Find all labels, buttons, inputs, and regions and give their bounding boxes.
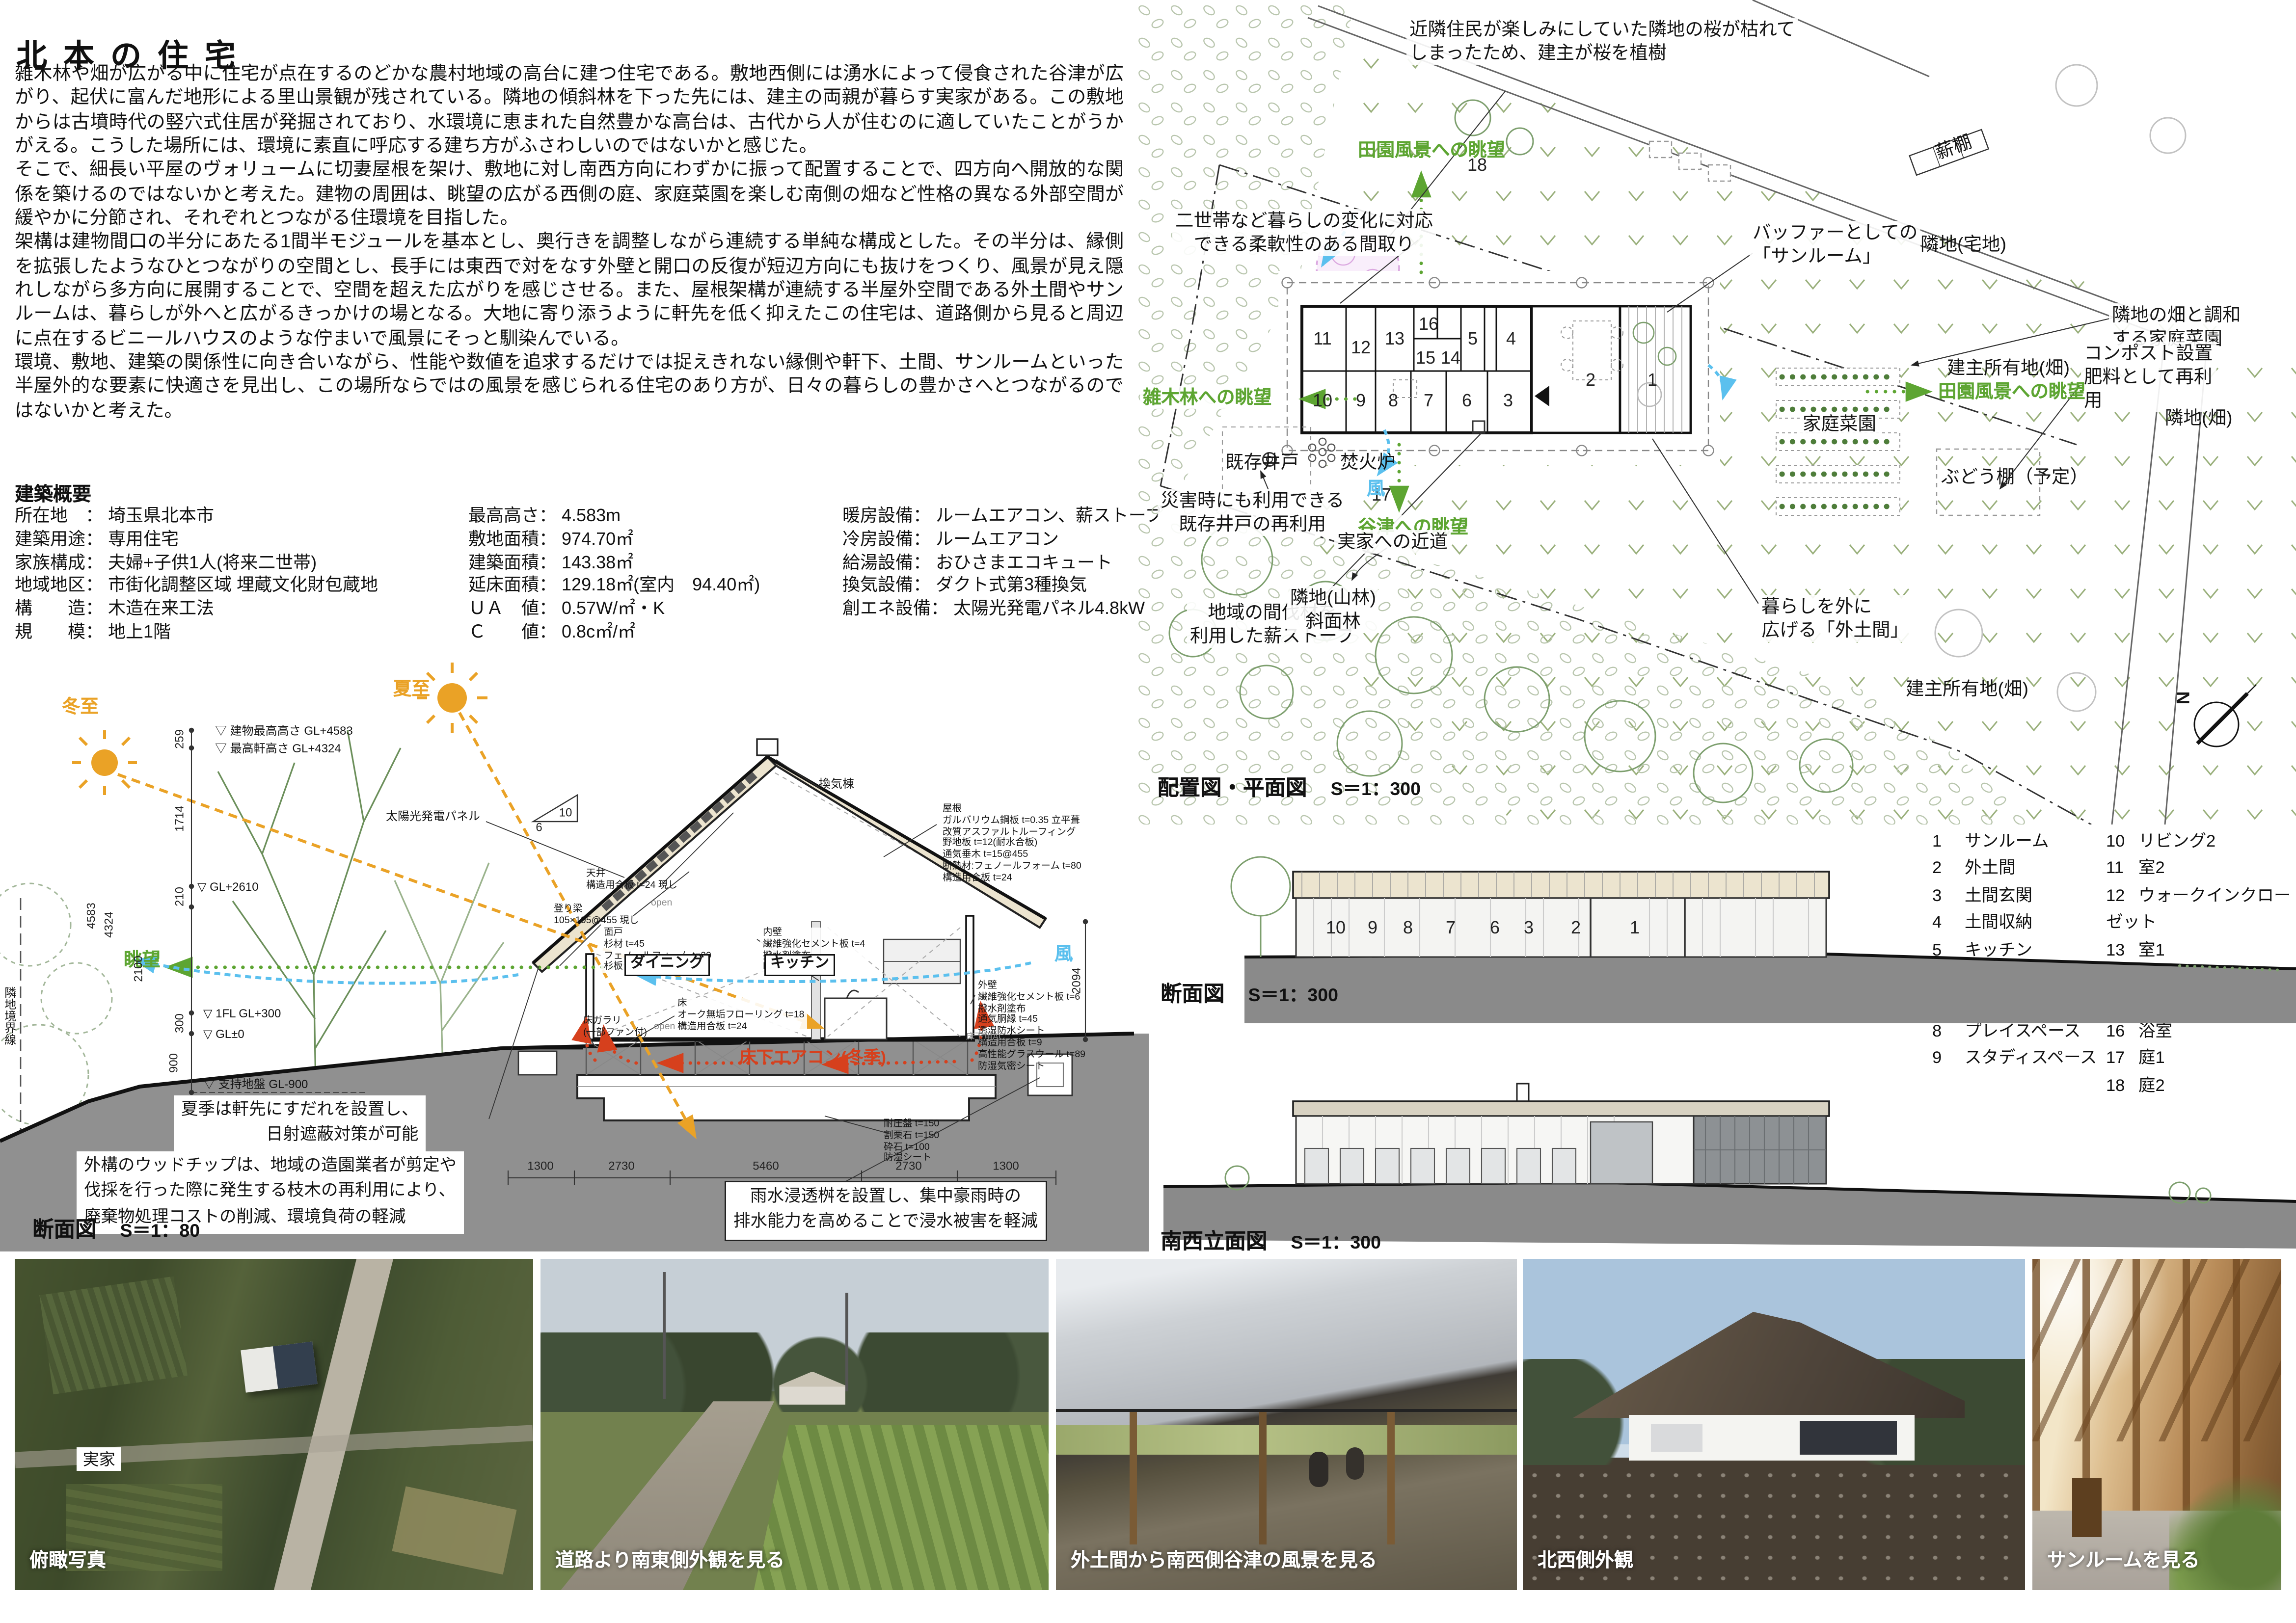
rainwater-note: 雨水浸透桝を設置し、集中豪雨時の 排水能力を高めることで浸水被害を軽減: [725, 1181, 1047, 1241]
photo-aerial: 実家 俯瞰写真: [15, 1259, 533, 1590]
overview-value: おひさまエコキュート: [936, 552, 1112, 572]
room-9: 9: [1356, 390, 1366, 411]
dim-1300: 1300: [993, 1160, 1019, 1173]
fire-pit-label: 焚火炉: [1340, 451, 1396, 474]
dim-4583: 4583: [85, 903, 98, 929]
timber-post: [1259, 1411, 1266, 1544]
person-silhouette: [1309, 1451, 1328, 1487]
room-6: 6: [1462, 390, 1472, 411]
left-tree: [1231, 857, 1290, 957]
sec300-room: 7: [1446, 917, 1456, 938]
room-11: 11: [1313, 328, 1331, 349]
jikka-tag: 実家: [77, 1448, 121, 1471]
intro-paragraph: 雑木林や畑が広がる中に住宅が点在するのどかな農村地域の高台に建つ住宅である。敷地…: [15, 62, 1124, 158]
wall-right: [966, 916, 973, 1039]
ac-unit-label: 床下用AC: [966, 1034, 1005, 1045]
kitchen-counter: [825, 998, 887, 1039]
overview-value: 太陽光発電パネル4.8kW: [953, 598, 1145, 619]
white-wall: [1628, 1414, 1915, 1461]
sec300-room: 8: [1403, 917, 1413, 938]
open-label: open: [654, 1022, 675, 1033]
wind-label: 風: [1054, 942, 1073, 966]
photo-caption: サンルームを見る: [2047, 1544, 2200, 1572]
boundary-label: 隣地境界線: [3, 986, 17, 1045]
dim-1714: 1714: [173, 805, 187, 831]
sun-winter: [72, 730, 137, 795]
over-value: 0.57W/㎡・K: [562, 598, 665, 619]
dim-5460: 5460: [753, 1160, 779, 1173]
room-1: 1: [1648, 370, 1657, 390]
grape-trellis-label: ぶどう棚（予定）: [1941, 465, 2088, 489]
overview-value: 129.18㎡(室内 94.40㎡): [562, 575, 760, 595]
plan-indoor: [1302, 306, 1532, 433]
intro-text: 雑木林や畑が広がる中に住宅が点在するのどかな農村地域の高台に建つ住宅である。敷地…: [15, 62, 1124, 423]
overview-label: 創エネ設備：: [842, 598, 953, 619]
overview-label: 地域地区：: [15, 575, 108, 595]
overview-value: ルームエアコン、薪ストーブ: [936, 505, 1163, 526]
overview-label: 建築用途：: [15, 528, 108, 549]
aerial-road: [274, 1259, 393, 1590]
sunlit-field: [1056, 1425, 1517, 1455]
overview-value: 974.70㎡: [562, 528, 633, 549]
kitchen-garden-label: 家庭菜園: [1800, 412, 1879, 436]
underfloor-ac-label: 床下エアコン(冬季): [739, 1048, 886, 1070]
wind-plan-label: 風: [1367, 477, 1385, 501]
aerial-solar-roof: [273, 1341, 318, 1388]
outdoor-doma-note: 暮らしを外に 広げる「外土間」: [1758, 595, 1912, 642]
overview-label: 建築面積：: [468, 552, 562, 572]
neighbor-forest-label: 隣地(山林) 斜面林: [1287, 586, 1379, 633]
dining-label: ダイニング: [624, 954, 710, 976]
foundation: [577, 1075, 996, 1120]
timber-post: [1388, 1411, 1395, 1544]
rural-view-top-label: 田園風景への眺望: [1358, 138, 1505, 162]
room-7: 7: [1424, 390, 1433, 411]
room-4: 4: [1506, 328, 1516, 349]
ridge-vent-label: 換気棟: [819, 777, 854, 792]
dim-2730: 2730: [895, 1160, 921, 1173]
dim-259: 259: [173, 729, 187, 749]
woods-view-label: 雑木林への眺望: [1140, 386, 1275, 409]
overview-value: 木造在来工法: [108, 598, 214, 619]
wind-arrow-outside: [135, 960, 518, 984]
solar-panel-label: 太陽光発電パネル: [386, 810, 480, 825]
roof-edge: [1293, 1101, 1829, 1116]
sunroom-block: [1694, 1116, 1826, 1184]
neighbor-field-label: 隣地(畑): [2165, 406, 2232, 430]
intro-paragraph: 環境、敷地、建築の関係性に向き合いながら、性能や数値を追求するだけでは捉えきれな…: [15, 350, 1124, 423]
overview-label: 所在地 ：: [15, 505, 108, 526]
window-opening-2: [1651, 1424, 1702, 1452]
deck-footing: [518, 1051, 557, 1075]
two-household-note: 二世帯など暮らしの変化に対応 できる柔軟性のある間取り: [1172, 209, 1436, 256]
max-height-label: ▽ 建物最高高さ GL+4583: [215, 724, 353, 739]
window-opening: [1800, 1420, 1897, 1456]
gl0-label: ▽ GL±0: [203, 1028, 244, 1042]
dim-300: 300: [173, 1013, 187, 1033]
sec300-room: 3: [1524, 917, 1534, 938]
eave-height-label: ▽ 最高軒高さ GL+4324: [215, 742, 341, 757]
north-label: N: [2172, 691, 2195, 704]
compost-note: コンポスト設置 肥料として再利 用: [2081, 342, 2216, 412]
dim-900: 900: [167, 1053, 181, 1073]
vegetable-field: [754, 1425, 1049, 1591]
sec300-room: 1: [1630, 917, 1640, 938]
overview-heading: 建築概要: [15, 479, 91, 506]
overview-label: 冷房設備：: [842, 528, 936, 549]
slab-note-label: 耐圧盤 t=150 割栗石 t=150 砕石 t=100 防湿シート: [884, 1119, 939, 1165]
overview-label: 最高高さ：: [468, 505, 562, 526]
room-16: 16: [1419, 314, 1438, 334]
recess-block: [1591, 1122, 1652, 1184]
roof-spec-label: 屋根 ガルバリウム鋼板 t=0.35 立平葺 改質アスファルトルーフィング 野地…: [943, 804, 1081, 884]
utility-pole: [845, 1292, 848, 1392]
overview-value: ダクト式第3種換気: [936, 575, 1087, 595]
room-15: 15: [1416, 347, 1435, 368]
chair-silhouette: [2072, 1478, 2102, 1538]
room-10: 10: [1313, 390, 1332, 411]
room-3: 3: [1503, 390, 1513, 411]
intro-paragraph: 架構は建物間口の半分にあたる1間半モジュールを基本とし、奥行きを調整しながら連続…: [15, 230, 1124, 350]
plan-doma: [1532, 306, 1620, 433]
fl1-label: ▽ 1FL GL+300: [203, 1007, 281, 1022]
photo-caption: 道路より南東側外観を見る: [555, 1544, 784, 1572]
eave-line: [1056, 1410, 1517, 1412]
presentation-board: 北本の住宅 雑木林や畑が広がる中に住宅が点在するのどかな農村地域の高台に建つ住宅…: [0, 0, 2296, 1623]
elevation-sw: 南西立面図S＝1：300: [1149, 1031, 2296, 1266]
photo-nw-exterior: 北西側外観: [1523, 1259, 2025, 1590]
overview-value: 143.38㎡: [562, 552, 633, 572]
overview-value: ルームエアコン: [936, 528, 1059, 549]
room-2: 2: [1586, 370, 1595, 390]
dim-2730: 2730: [608, 1160, 634, 1173]
ceiling-spec-label: 天井 構造用合板 t=24 現し: [586, 869, 677, 892]
sec300-room: 9: [1368, 917, 1378, 938]
overview-label: 暖房設備：: [842, 505, 936, 526]
ridge-vent: [757, 739, 778, 755]
photo-sunroom: サンルームを見る: [2032, 1259, 2281, 1590]
disaster-well-note: 災害時にも利用できる 既存井戸の再利用: [1158, 489, 1347, 536]
existing-well-label: 既存井戸: [1225, 451, 1299, 474]
photo-doma: 外土間から南西側谷津の風景を見る: [1056, 1259, 1517, 1590]
overview-label: ＵＡ 値：: [468, 598, 562, 619]
overview-col-1: 所在地 ： 埼玉県北本市 建築用途： 専用住宅 家族構成： 夫婦+子供1人(将来…: [15, 505, 457, 644]
sec300-caption: 断面図S＝1：300: [1161, 978, 1338, 1009]
intro-paragraph: そこで、細長い平屋のヴォリュームに切妻屋根を架け、敷地に対し南西方向にわずかに振…: [15, 158, 1124, 230]
owner-land-lower-label: 建主所有地(畑): [1906, 677, 2028, 701]
photo-caption: 俯瞰写真: [29, 1544, 106, 1572]
slope-rise: 6: [536, 821, 542, 834]
bearing-ground-label: ▽ 支持地盤 GL-900: [203, 1078, 308, 1092]
owner-land-upper-label: 建主所有地(畑): [1947, 356, 2070, 380]
room-5: 5: [1468, 328, 1478, 349]
overview-value: 4.583m: [562, 505, 621, 526]
overview-value: 専用住宅: [108, 528, 179, 549]
dim-4324: 4324: [103, 911, 116, 937]
overview-col-3: 暖房設備： ルームエアコン、薪ストーブ 冷房設備： ルームエアコン 給湯設備： …: [842, 505, 1130, 621]
dim-1300: 1300: [527, 1160, 553, 1173]
shortcut-label: 実家への近道: [1334, 530, 1451, 554]
sunroom-buffer-note: バッファーとしての 「サンルーム」: [1750, 221, 1920, 268]
outer-wall-spec-label: 外壁 繊維強化セメント板 t=6 撥水剤塗布 通気胴縁 t=45 透湿防水シート…: [978, 981, 1085, 1072]
site-plan: 11 12 13 16 15 14 5 4 10 9 8 7 6 3 2 1 1…: [1134, 0, 2296, 825]
sec300-room: 2: [1571, 917, 1581, 938]
rural-view-right-label: 田園風景への眺望: [1938, 380, 2085, 403]
gl2610-label: ▽ GL+2610: [197, 880, 259, 895]
elevation-caption: 南西立面図S＝1：300: [1161, 1225, 1381, 1256]
overview-label: 換気設備：: [842, 575, 936, 595]
summer-solstice-label: 夏至: [393, 677, 430, 701]
neighbor-residential-label: 隣地(宅地): [1920, 233, 2006, 256]
section-1-80: 冬至 夏至 換気棟 ▽ 建物最高高さ GL+4583 ▽ 最高軒高さ GL+43…: [0, 633, 1149, 1251]
room-12: 12: [1351, 337, 1371, 358]
overview-label: 敷地面積：: [468, 528, 562, 549]
sudare-note: 夏季は軒先にすだれを設置し、 日射遮蔽対策が可能: [174, 1095, 426, 1152]
overview-value: 夫婦+子供1人(将来二世帯): [108, 552, 317, 572]
dim-2094: 2094: [1070, 967, 1083, 993]
room-14: 14: [1441, 347, 1460, 368]
kitchen-label: キッチン: [764, 954, 835, 976]
overview-value: 市街化調整区域 埋蔵文化財包蔵地: [108, 575, 378, 595]
section-1-300: 10 9 8 7 6 3 2 1 断面図S＝1：300: [1149, 825, 2296, 1023]
utility-pole: [662, 1272, 665, 1398]
roof-band: [1293, 872, 1829, 898]
open-label: open: [651, 898, 672, 909]
room-13: 13: [1385, 328, 1405, 349]
site-plan-drawing: [1134, 0, 2296, 825]
photo-road: 道路より南東側外観を見る: [540, 1259, 1049, 1590]
overview-label: 構 造：: [15, 598, 108, 619]
slope-run: 10: [559, 806, 572, 820]
room-8: 8: [1388, 390, 1398, 411]
site-plan-caption: 配置図・平面図S＝1：300: [1158, 772, 1421, 802]
timber-post: [1130, 1411, 1137, 1544]
aerial-house: [241, 1341, 318, 1392]
floor-vent-label: 床ガラリ (一部ファン付): [583, 1016, 647, 1039]
person-silhouette: [1347, 1448, 1364, 1480]
sec300-room: 10: [1326, 917, 1346, 938]
overview-label: 給湯設備：: [842, 552, 936, 572]
overview-label: 延床面積：: [468, 575, 562, 595]
photo-caption: 北西側外観: [1538, 1544, 1633, 1572]
floor-spec-label: 床 オーク無垢フローリング t=18 構造用合板 t=24: [675, 998, 807, 1033]
aerial-field-1: [40, 1277, 187, 1394]
sec300-room: 6: [1490, 917, 1500, 938]
dim-210: 210: [173, 887, 187, 906]
photo-caption: 外土間から南西側谷津の風景を見る: [1071, 1544, 1377, 1572]
overview-value: 埼玉県北本市: [108, 505, 214, 526]
sakura-note: 近隣住民が楽しみにしていた隣地の桜が枯れて しまったため、建主が桜を植樹: [1406, 18, 1798, 65]
winter-solstice-label: 冬至: [62, 695, 99, 718]
aerial-field-3: [393, 1486, 518, 1574]
beam-spec-label: 登り梁 105×105@455 現し: [554, 904, 639, 927]
dim-2100: 2100: [132, 956, 145, 982]
overview-col-2: 最高高さ： 4.583m 敷地面積： 974.70㎡ 建築面積： 143.38㎡…: [468, 505, 844, 644]
section80-caption: 断面図S＝1：80: [32, 1213, 200, 1244]
overview-label: 家族構成：: [15, 552, 108, 572]
